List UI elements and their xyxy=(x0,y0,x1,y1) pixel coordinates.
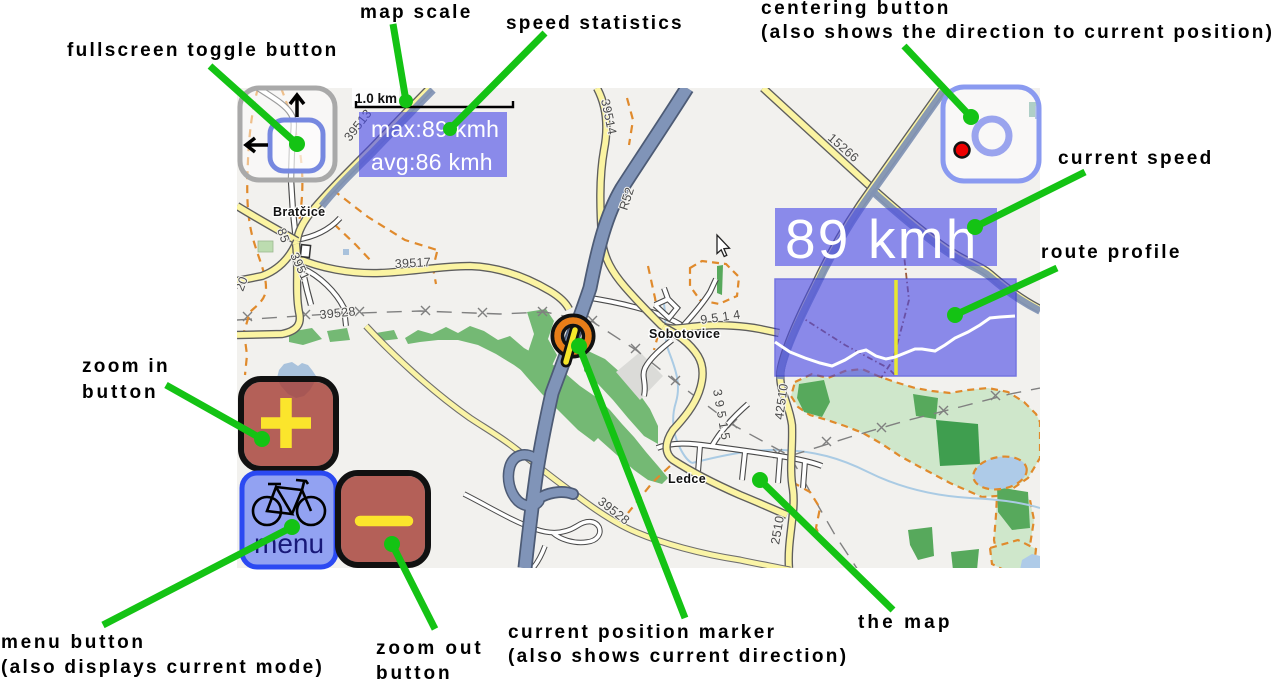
svg-text:the map: the map xyxy=(858,612,953,633)
svg-text:Sobotovice: Sobotovice xyxy=(649,327,720,341)
svg-text:current position marker: current position marker xyxy=(508,622,776,643)
svg-text:button: button xyxy=(82,382,158,403)
svg-text:map scale: map scale xyxy=(360,2,473,23)
svg-text:(also displays current mode): (also displays current mode) xyxy=(1,657,324,678)
svg-text:Bratčice: Bratčice xyxy=(273,205,326,219)
svg-text:current speed: current speed xyxy=(1058,148,1214,169)
svg-text:1.0 km: 1.0 km xyxy=(355,91,397,106)
svg-text:avg:86 kmh: avg:86 kmh xyxy=(371,149,493,175)
svg-text:39517: 39517 xyxy=(394,255,431,271)
svg-text:(also shows current direction): (also shows current direction) xyxy=(508,646,848,667)
svg-text:zoom in: zoom in xyxy=(82,356,170,377)
svg-text:89 kmh: 89 kmh xyxy=(785,208,979,270)
svg-text:(also shows the direction to c: (also shows the direction to current pos… xyxy=(761,22,1272,43)
svg-text:fullscreen toggle button: fullscreen toggle button xyxy=(67,40,339,61)
svg-text:menu button: menu button xyxy=(1,632,146,653)
svg-text:zoom out: zoom out xyxy=(376,638,484,659)
svg-text:route profile: route profile xyxy=(1041,242,1182,263)
svg-text:centering button: centering button xyxy=(761,0,951,19)
svg-text:speed statistics: speed statistics xyxy=(506,13,684,34)
svg-text:button: button xyxy=(376,663,452,680)
svg-text:max:89 kmh: max:89 kmh xyxy=(371,116,499,142)
svg-text:Ledce: Ledce xyxy=(668,472,706,486)
